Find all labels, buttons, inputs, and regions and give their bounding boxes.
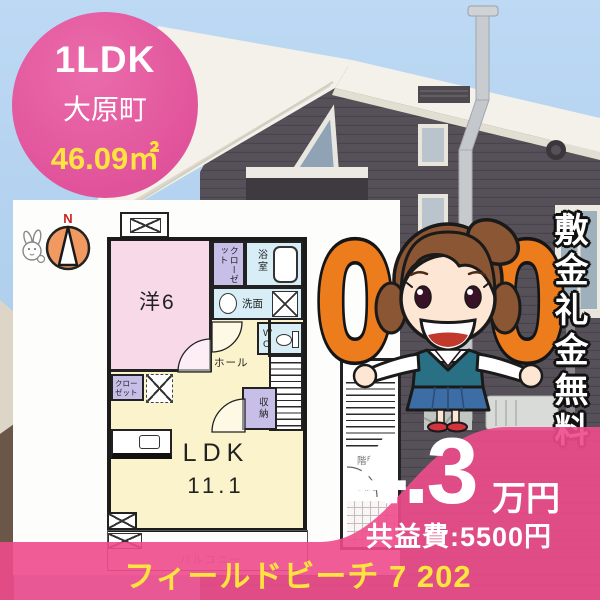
low-window-box — [107, 512, 137, 530]
door-arcs — [111, 241, 303, 528]
property-name: フィールドビーチ 7 202 — [124, 551, 472, 596]
badge-location: 大原町 — [12, 88, 198, 128]
balcony-rail — [246, 167, 368, 178]
neighbor-roof — [0, 300, 14, 434]
listing-card: N 洋6 クローゼット — [0, 0, 600, 600]
no-deposit-banner: 敷金礼金無料 — [551, 212, 585, 452]
common-fee: 共益費:5500円 — [366, 515, 552, 554]
compass-n-label: N — [63, 211, 72, 226]
rent-unit: 万円 — [492, 471, 560, 520]
window-small-1 — [420, 126, 446, 164]
badge-area: 46.09㎡ — [12, 133, 198, 178]
neighbor-pillar — [0, 424, 14, 600]
chimney-cap — [468, 6, 498, 16]
unit-outline: 洋6 クローゼット 浴室 洗面 WC — [107, 237, 307, 532]
upper-window-box — [120, 212, 169, 238]
chimney-pipe — [476, 16, 489, 100]
listing-badge: 1LDK 大原町 46.09㎡ — [12, 12, 198, 198]
badge-layout-type: 1LDK — [12, 39, 198, 81]
rabbit-doodle-icon — [17, 228, 49, 268]
vent-grille — [418, 86, 470, 103]
rent-amount: 4.3 — [354, 424, 476, 518]
